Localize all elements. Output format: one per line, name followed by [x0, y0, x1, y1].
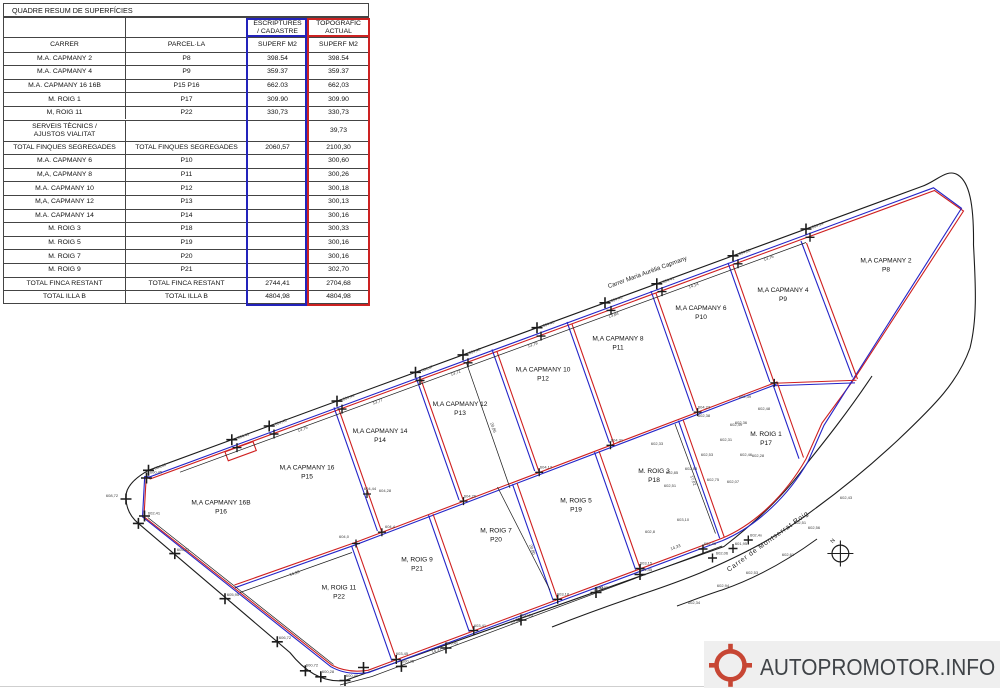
svg-text:602,61: 602,61: [782, 552, 795, 557]
svg-text:603,41: 603,41: [474, 623, 487, 628]
svg-text:M,A CAPMANY 14: M,A CAPMANY 14: [353, 428, 408, 435]
svg-text:606,72: 606,72: [279, 635, 292, 640]
svg-text:602,49: 602,49: [730, 422, 743, 427]
svg-text:P19: P19: [570, 507, 582, 514]
svg-text:P18: P18: [648, 477, 660, 484]
svg-text:M,A CAPMANY 16B: M,A CAPMANY 16B: [191, 500, 251, 507]
svg-text:M,A CAPMANY 4: M,A CAPMANY 4: [757, 287, 809, 294]
svg-text:602,75: 602,75: [707, 477, 720, 482]
svg-text:602,83: 602,83: [685, 466, 698, 471]
svg-text:604,46: 604,46: [542, 319, 556, 328]
svg-text:M, ROIG 5: M, ROIG 5: [560, 498, 592, 505]
svg-text:604,12: 604,12: [540, 465, 553, 470]
svg-text:M,A CAPMANY 12: M,A CAPMANY 12: [433, 401, 488, 408]
svg-text:14,39: 14,39: [289, 569, 301, 577]
svg-text:604,43: 604,43: [610, 294, 624, 303]
svg-text:603,18: 603,18: [557, 592, 570, 597]
svg-text:P12: P12: [537, 376, 549, 383]
svg-text:603,10: 603,10: [677, 517, 690, 522]
svg-text:604,45: 604,45: [274, 417, 288, 426]
svg-text:602,53: 602,53: [701, 452, 714, 457]
svg-text:602,28: 602,28: [752, 453, 765, 458]
svg-text:604,41: 604,41: [662, 275, 676, 284]
svg-text:602,06: 602,06: [716, 551, 729, 556]
svg-text:P14: P14: [374, 437, 386, 444]
svg-text:600,41: 600,41: [446, 641, 459, 646]
svg-text:P13: P13: [454, 410, 466, 417]
svg-text:604,44: 604,44: [364, 486, 377, 491]
svg-text:602,31: 602,31: [720, 437, 733, 442]
svg-text:604,31: 604,31: [611, 438, 624, 443]
svg-text:P10: P10: [695, 314, 707, 321]
svg-text:602,8: 602,8: [645, 529, 656, 534]
svg-text:602,48: 602,48: [758, 406, 771, 411]
svg-text:M,A CAPMANY 10: M,A CAPMANY 10: [516, 367, 571, 374]
svg-text:P22: P22: [333, 594, 345, 601]
svg-text:M, ROIG 7: M, ROIG 7: [480, 528, 512, 535]
svg-text:604,48: 604,48: [468, 346, 482, 355]
svg-text:M, ROIG 11: M, ROIG 11: [322, 585, 357, 592]
svg-text:604,4: 604,4: [385, 524, 396, 529]
svg-text:603,45: 603,45: [396, 651, 409, 656]
svg-text:P11: P11: [612, 345, 624, 352]
svg-text:600,49: 600,49: [346, 673, 359, 678]
svg-text:601,95: 601,95: [735, 541, 748, 546]
svg-text:M, ROIG 9: M, ROIG 9: [401, 557, 433, 564]
svg-text:604,23: 604,23: [698, 405, 711, 410]
svg-text:605,21: 605,21: [177, 547, 190, 552]
svg-text:P15: P15: [301, 474, 313, 481]
svg-text:603,15: 603,15: [640, 561, 653, 566]
svg-text:602,07: 602,07: [727, 479, 740, 484]
svg-text:600,72: 600,72: [306, 663, 319, 668]
svg-text:604,28: 604,28: [738, 247, 752, 256]
svg-text:M. ROIG 1: M. ROIG 1: [750, 431, 782, 438]
svg-text:600,95: 600,95: [521, 613, 534, 618]
svg-text:602,38: 602,38: [698, 413, 711, 418]
svg-text:602,4x: 602,4x: [750, 533, 762, 538]
svg-text:602,53: 602,53: [746, 570, 759, 575]
svg-text:14,33: 14,33: [670, 543, 682, 552]
svg-text:P21: P21: [411, 566, 423, 573]
svg-text:602,39: 602,39: [739, 394, 752, 399]
svg-text:602,43: 602,43: [840, 495, 853, 500]
svg-text:602,56: 602,56: [808, 525, 821, 530]
svg-text:602,46: 602,46: [704, 541, 717, 546]
svg-text:604,47: 604,47: [420, 364, 434, 373]
svg-text:602,34: 602,34: [688, 600, 701, 605]
svg-text:17,02: 17,02: [689, 475, 698, 487]
svg-text:P9: P9: [779, 296, 787, 303]
svg-text:P8: P8: [882, 267, 890, 274]
svg-text:M,A CAPMANY 6: M,A CAPMANY 6: [675, 305, 727, 312]
svg-text:P17: P17: [760, 440, 772, 447]
svg-text:601,45: 601,45: [640, 567, 653, 572]
svg-text:605,95: 605,95: [227, 592, 240, 597]
svg-text:P16: P16: [215, 509, 227, 516]
svg-text:M,A CAPMANY 16: M,A CAPMANY 16: [280, 465, 335, 472]
svg-text:604,44: 604,44: [342, 392, 356, 401]
svg-text:604,49: 604,49: [237, 431, 251, 440]
svg-text:600,28: 600,28: [322, 669, 335, 674]
svg-text:N: N: [830, 538, 837, 545]
svg-text:600,45: 600,45: [402, 659, 415, 664]
svg-text:600,45: 600,45: [150, 470, 163, 475]
svg-text:M,A CAPMANY 2: M,A CAPMANY 2: [860, 258, 912, 265]
svg-text:602,51: 602,51: [664, 483, 677, 488]
svg-text:602,41: 602,41: [148, 511, 161, 516]
svg-text:604,0: 604,0: [339, 534, 350, 539]
svg-text:604,28: 604,28: [379, 488, 392, 493]
svg-text:608,72: 608,72: [106, 493, 119, 498]
svg-text:602,94: 602,94: [717, 583, 730, 588]
svg-text:M. ROIG 3: M. ROIG 3: [638, 468, 670, 475]
svg-text:604,26: 604,26: [464, 494, 477, 499]
svg-text:M,A CAPMANY 8: M,A CAPMANY 8: [592, 336, 644, 343]
svg-text:P20: P20: [490, 537, 502, 544]
svg-text:602,33: 602,33: [651, 441, 664, 446]
